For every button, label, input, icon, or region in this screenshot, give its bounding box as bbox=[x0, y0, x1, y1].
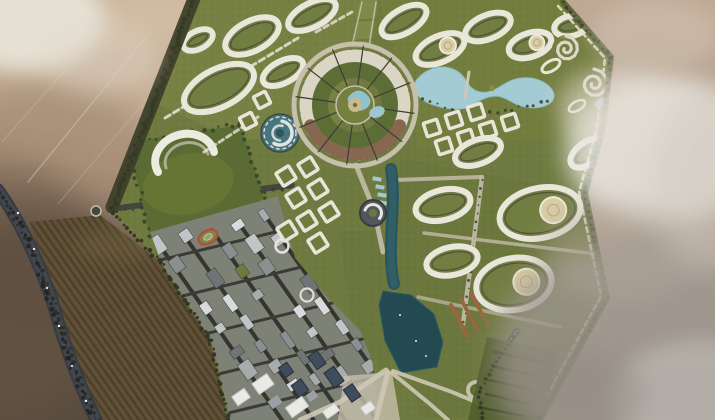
tree bbox=[480, 411, 484, 415]
tree bbox=[149, 114, 153, 118]
tree bbox=[162, 269, 166, 273]
fog bbox=[590, 0, 715, 70]
tree bbox=[69, 367, 72, 370]
tree bbox=[263, 191, 266, 194]
tree bbox=[69, 347, 72, 350]
tree bbox=[487, 373, 491, 377]
tree bbox=[142, 121, 147, 126]
tree bbox=[202, 128, 206, 132]
tree bbox=[54, 321, 58, 325]
tree bbox=[163, 263, 166, 266]
tree bbox=[115, 215, 119, 219]
tree bbox=[255, 174, 259, 178]
dark-ring-courtyard bbox=[369, 209, 377, 217]
tree bbox=[510, 109, 513, 112]
tree bbox=[49, 307, 54, 312]
tree bbox=[150, 253, 154, 257]
tree bbox=[429, 100, 432, 103]
courtyard-block bbox=[467, 103, 485, 121]
tree bbox=[186, 13, 189, 16]
tree bbox=[585, 29, 588, 32]
tree bbox=[16, 224, 18, 226]
courtyard-block bbox=[253, 91, 270, 108]
tree bbox=[56, 312, 59, 315]
tree bbox=[41, 284, 46, 289]
tree bbox=[482, 179, 484, 181]
tree bbox=[143, 212, 147, 216]
tree bbox=[578, 21, 580, 23]
tree bbox=[125, 226, 129, 230]
tree bbox=[123, 224, 126, 227]
tree bbox=[155, 138, 158, 141]
courtyard-buildings bbox=[445, 111, 463, 129]
courtyard-block bbox=[239, 112, 256, 129]
tree bbox=[421, 97, 424, 100]
masterplan-aerial-image bbox=[0, 0, 715, 420]
tree bbox=[47, 282, 49, 284]
courtyard-buildings bbox=[435, 137, 453, 155]
tree bbox=[174, 51, 177, 54]
tree bbox=[133, 234, 136, 237]
car bbox=[17, 212, 19, 214]
tree bbox=[36, 273, 40, 277]
tree bbox=[204, 330, 207, 333]
fog bbox=[557, 65, 667, 145]
tree bbox=[220, 392, 225, 397]
tree bbox=[580, 24, 583, 27]
tree bbox=[126, 168, 130, 172]
boat bbox=[415, 340, 417, 342]
tree bbox=[176, 291, 180, 295]
tree bbox=[139, 198, 142, 201]
tree bbox=[140, 130, 145, 135]
tree bbox=[132, 209, 134, 211]
courtyard-block bbox=[435, 137, 453, 155]
car bbox=[27, 233, 29, 235]
tree bbox=[65, 356, 69, 360]
tree bbox=[546, 100, 549, 103]
tree bbox=[24, 233, 27, 236]
plaza-center-monument bbox=[353, 103, 357, 107]
tree bbox=[169, 64, 172, 67]
tree bbox=[132, 151, 137, 156]
tree bbox=[139, 205, 143, 209]
tree bbox=[169, 59, 174, 64]
tree bbox=[218, 381, 223, 386]
tree bbox=[109, 206, 112, 209]
tree bbox=[113, 201, 118, 206]
tree bbox=[217, 373, 220, 376]
courtyard-buildings bbox=[423, 119, 441, 137]
tree bbox=[128, 155, 132, 159]
tree bbox=[222, 398, 225, 401]
tree bbox=[263, 197, 266, 200]
masterplan-svg bbox=[0, 0, 715, 420]
tree bbox=[187, 9, 190, 12]
tree bbox=[211, 358, 215, 362]
tree bbox=[55, 302, 57, 304]
lake-island bbox=[489, 85, 495, 91]
tree bbox=[198, 320, 201, 323]
tree bbox=[133, 143, 136, 146]
tree bbox=[117, 194, 120, 197]
tree bbox=[79, 376, 82, 379]
car bbox=[46, 287, 48, 289]
tree bbox=[587, 204, 590, 207]
tree bbox=[199, 327, 203, 331]
tree bbox=[34, 254, 37, 257]
tree bbox=[23, 236, 27, 240]
tree bbox=[144, 126, 148, 130]
tree bbox=[57, 317, 61, 321]
tree bbox=[111, 211, 115, 215]
tree bbox=[139, 139, 143, 143]
courtyard-buildings bbox=[253, 91, 270, 108]
tree bbox=[504, 109, 507, 112]
tree bbox=[608, 62, 611, 65]
tree bbox=[208, 343, 211, 346]
tree bbox=[49, 302, 52, 305]
tree bbox=[150, 105, 155, 110]
tree bbox=[569, 11, 572, 14]
courtyard-block bbox=[501, 113, 519, 131]
tree bbox=[140, 239, 144, 243]
tree bbox=[136, 148, 139, 151]
tree bbox=[175, 285, 179, 289]
tree bbox=[27, 237, 32, 242]
tree bbox=[474, 229, 476, 231]
tree bbox=[205, 334, 209, 338]
tree bbox=[151, 110, 155, 114]
tree bbox=[462, 321, 465, 324]
courtyard-buildings bbox=[239, 112, 256, 129]
tree bbox=[180, 25, 184, 29]
highway-junction bbox=[91, 206, 101, 216]
tree bbox=[189, 4, 193, 8]
tree bbox=[177, 29, 182, 34]
tree bbox=[81, 396, 85, 400]
tree bbox=[1, 196, 5, 200]
tree bbox=[142, 220, 146, 224]
courtyard-buildings bbox=[467, 103, 485, 121]
tree bbox=[215, 368, 218, 371]
tree bbox=[257, 180, 261, 184]
tree bbox=[488, 110, 492, 114]
tree bbox=[467, 279, 470, 282]
tree bbox=[224, 402, 227, 405]
tree bbox=[119, 218, 122, 221]
boat bbox=[399, 314, 401, 316]
tree bbox=[136, 238, 140, 242]
tree bbox=[479, 401, 482, 404]
tree bbox=[44, 296, 49, 301]
tree bbox=[210, 339, 213, 342]
tree bbox=[21, 231, 23, 233]
tree bbox=[451, 108, 454, 111]
tree bbox=[480, 416, 484, 420]
tree bbox=[148, 138, 150, 140]
tree bbox=[573, 15, 575, 17]
tree bbox=[490, 369, 493, 372]
tree bbox=[224, 408, 227, 411]
eye-park-center bbox=[276, 129, 284, 137]
tree bbox=[41, 276, 45, 280]
tree bbox=[31, 253, 35, 257]
tree bbox=[212, 352, 217, 357]
tree bbox=[161, 79, 166, 84]
tree bbox=[478, 406, 482, 410]
tree bbox=[144, 247, 147, 250]
tree bbox=[280, 188, 283, 191]
tree bbox=[159, 260, 163, 264]
tree bbox=[272, 188, 275, 191]
tree bbox=[41, 280, 45, 284]
tree bbox=[132, 176, 136, 180]
tree bbox=[18, 221, 22, 225]
tree bbox=[170, 46, 175, 51]
tree bbox=[479, 390, 481, 392]
tree bbox=[212, 348, 215, 351]
tree bbox=[168, 277, 173, 282]
tree bbox=[162, 67, 167, 72]
car bbox=[85, 400, 87, 402]
tree bbox=[66, 350, 70, 354]
tree bbox=[230, 125, 234, 129]
tree bbox=[148, 248, 153, 253]
tree bbox=[248, 152, 252, 156]
boat bbox=[425, 355, 427, 357]
tree bbox=[75, 384, 79, 388]
tree bbox=[63, 332, 67, 336]
tree bbox=[156, 93, 160, 97]
tree bbox=[479, 187, 482, 190]
tree bbox=[88, 398, 91, 401]
tree bbox=[27, 243, 30, 246]
tree bbox=[477, 204, 479, 206]
tree bbox=[124, 209, 126, 211]
tree bbox=[51, 297, 55, 301]
tree bbox=[237, 123, 241, 127]
tree bbox=[249, 160, 253, 164]
tree bbox=[140, 191, 143, 194]
tree bbox=[75, 370, 78, 373]
tree bbox=[147, 235, 150, 238]
tree bbox=[193, 312, 196, 315]
car bbox=[58, 325, 60, 327]
tree bbox=[21, 224, 25, 228]
courtyard-block bbox=[445, 111, 463, 129]
tree bbox=[242, 137, 246, 141]
tree bbox=[539, 100, 543, 104]
tree bbox=[72, 360, 76, 364]
tree bbox=[518, 105, 520, 107]
tree bbox=[12, 218, 15, 221]
tree bbox=[37, 263, 40, 266]
tree bbox=[41, 268, 45, 272]
tree bbox=[477, 396, 480, 399]
tree bbox=[492, 365, 495, 368]
tree bbox=[130, 160, 134, 164]
tree bbox=[185, 301, 189, 305]
tree bbox=[92, 411, 95, 414]
car bbox=[33, 248, 35, 250]
tree bbox=[15, 216, 18, 219]
tree bbox=[496, 111, 499, 114]
tree bbox=[241, 132, 245, 136]
tree bbox=[475, 221, 478, 224]
tree bbox=[177, 34, 181, 38]
tree bbox=[113, 198, 117, 202]
tree bbox=[135, 184, 138, 187]
river-highlight bbox=[391, 169, 394, 284]
tree bbox=[182, 17, 187, 22]
fog bbox=[40, 23, 160, 93]
tree bbox=[90, 404, 94, 408]
tree bbox=[225, 123, 229, 127]
tree bbox=[181, 21, 185, 25]
tree bbox=[484, 382, 486, 384]
tree bbox=[117, 189, 121, 193]
tree bbox=[288, 186, 291, 189]
tree bbox=[176, 38, 180, 42]
tree bbox=[119, 180, 124, 185]
tree bbox=[147, 227, 150, 230]
tree bbox=[532, 104, 535, 107]
tree bbox=[176, 41, 181, 46]
tree bbox=[477, 213, 479, 215]
tree bbox=[61, 326, 65, 330]
tree bbox=[126, 164, 130, 168]
tree bbox=[64, 340, 68, 344]
tree bbox=[196, 316, 199, 319]
tree bbox=[217, 125, 219, 127]
tree bbox=[260, 190, 264, 194]
tree bbox=[479, 386, 482, 389]
tree bbox=[526, 105, 529, 108]
tree bbox=[88, 410, 93, 415]
tree bbox=[484, 377, 488, 381]
tree bbox=[478, 196, 480, 198]
tree bbox=[436, 103, 438, 105]
tree bbox=[254, 167, 257, 170]
tree bbox=[584, 198, 587, 201]
tree bbox=[226, 413, 230, 417]
tree bbox=[9, 207, 12, 210]
tree bbox=[146, 118, 150, 122]
tree bbox=[117, 184, 122, 189]
tree bbox=[123, 172, 126, 175]
tree bbox=[211, 129, 215, 133]
tree bbox=[81, 383, 84, 386]
tree bbox=[129, 231, 132, 234]
tree bbox=[181, 295, 184, 298]
courtyard-buildings bbox=[501, 113, 519, 131]
tree bbox=[468, 288, 470, 290]
tree bbox=[11, 210, 15, 214]
tree bbox=[565, 6, 568, 9]
tree bbox=[7, 212, 11, 216]
tree bbox=[158, 84, 163, 89]
tree bbox=[215, 363, 218, 366]
courtyard-block bbox=[423, 119, 441, 137]
car bbox=[63, 344, 65, 346]
tree bbox=[189, 309, 193, 313]
tree bbox=[70, 353, 74, 357]
car bbox=[71, 365, 73, 367]
tree bbox=[6, 204, 9, 207]
tree bbox=[154, 88, 159, 93]
tree bbox=[5, 200, 8, 203]
tree bbox=[562, 1, 565, 4]
tree bbox=[137, 134, 141, 138]
tree bbox=[156, 255, 159, 258]
tree bbox=[83, 392, 87, 396]
tree bbox=[164, 71, 169, 76]
tree bbox=[444, 107, 446, 109]
tree bbox=[246, 146, 250, 150]
tree bbox=[465, 295, 468, 298]
